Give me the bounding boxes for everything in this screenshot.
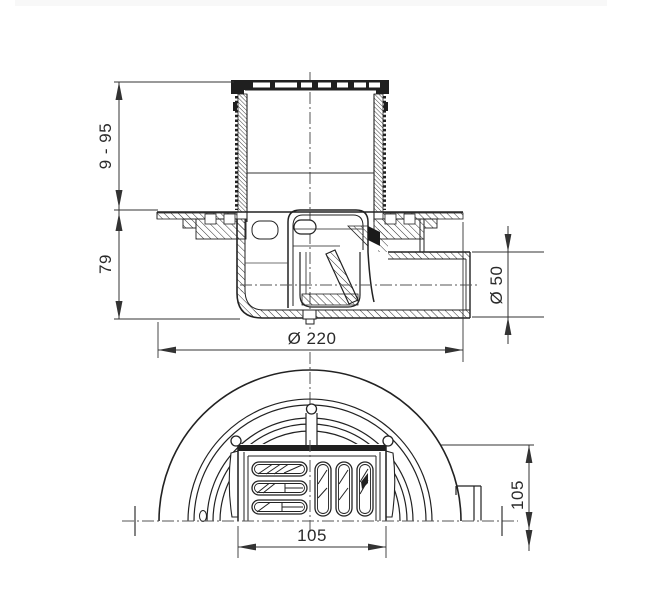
front-section-view: 9 - 95 79 Ø 220 Ø 50 bbox=[96, 72, 544, 440]
grate-slots-vertical bbox=[315, 462, 373, 516]
dim-label-adjustable-height: 9 - 95 bbox=[96, 123, 115, 169]
technical-drawing-page: 9 - 95 79 Ø 220 Ø 50 bbox=[0, 0, 655, 603]
grate-slots-horizontal bbox=[252, 462, 307, 514]
dim-label-grate-depth: 105 bbox=[508, 480, 527, 510]
half-plan-view: 105 105 bbox=[122, 370, 534, 558]
dim-label-flange-diameter: Ø 220 bbox=[288, 329, 337, 348]
riser-wall-left bbox=[238, 94, 247, 212]
screw-left bbox=[231, 436, 241, 446]
outlet-pipe-wall bbox=[388, 252, 470, 259]
technical-drawing-canvas: 9 - 95 79 Ø 220 Ø 50 bbox=[0, 0, 655, 603]
dimension-outlet-diameter bbox=[472, 226, 544, 344]
screw-top bbox=[307, 404, 317, 414]
screw-right bbox=[383, 436, 393, 446]
grate-top-edge bbox=[238, 445, 386, 451]
trap-insert bbox=[245, 210, 380, 308]
dimension-heights bbox=[114, 82, 240, 319]
overflow-knob bbox=[294, 220, 316, 234]
riser-wall-right bbox=[374, 94, 383, 212]
bayonet-lug bbox=[252, 221, 278, 239]
scan-artifact-strip bbox=[15, 0, 607, 6]
dim-label-grate-width: 105 bbox=[297, 526, 327, 545]
dim-label-outlet-diameter: Ø 50 bbox=[487, 266, 506, 305]
dim-label-body-height: 79 bbox=[96, 254, 115, 274]
grate-assembly bbox=[229, 444, 395, 522]
